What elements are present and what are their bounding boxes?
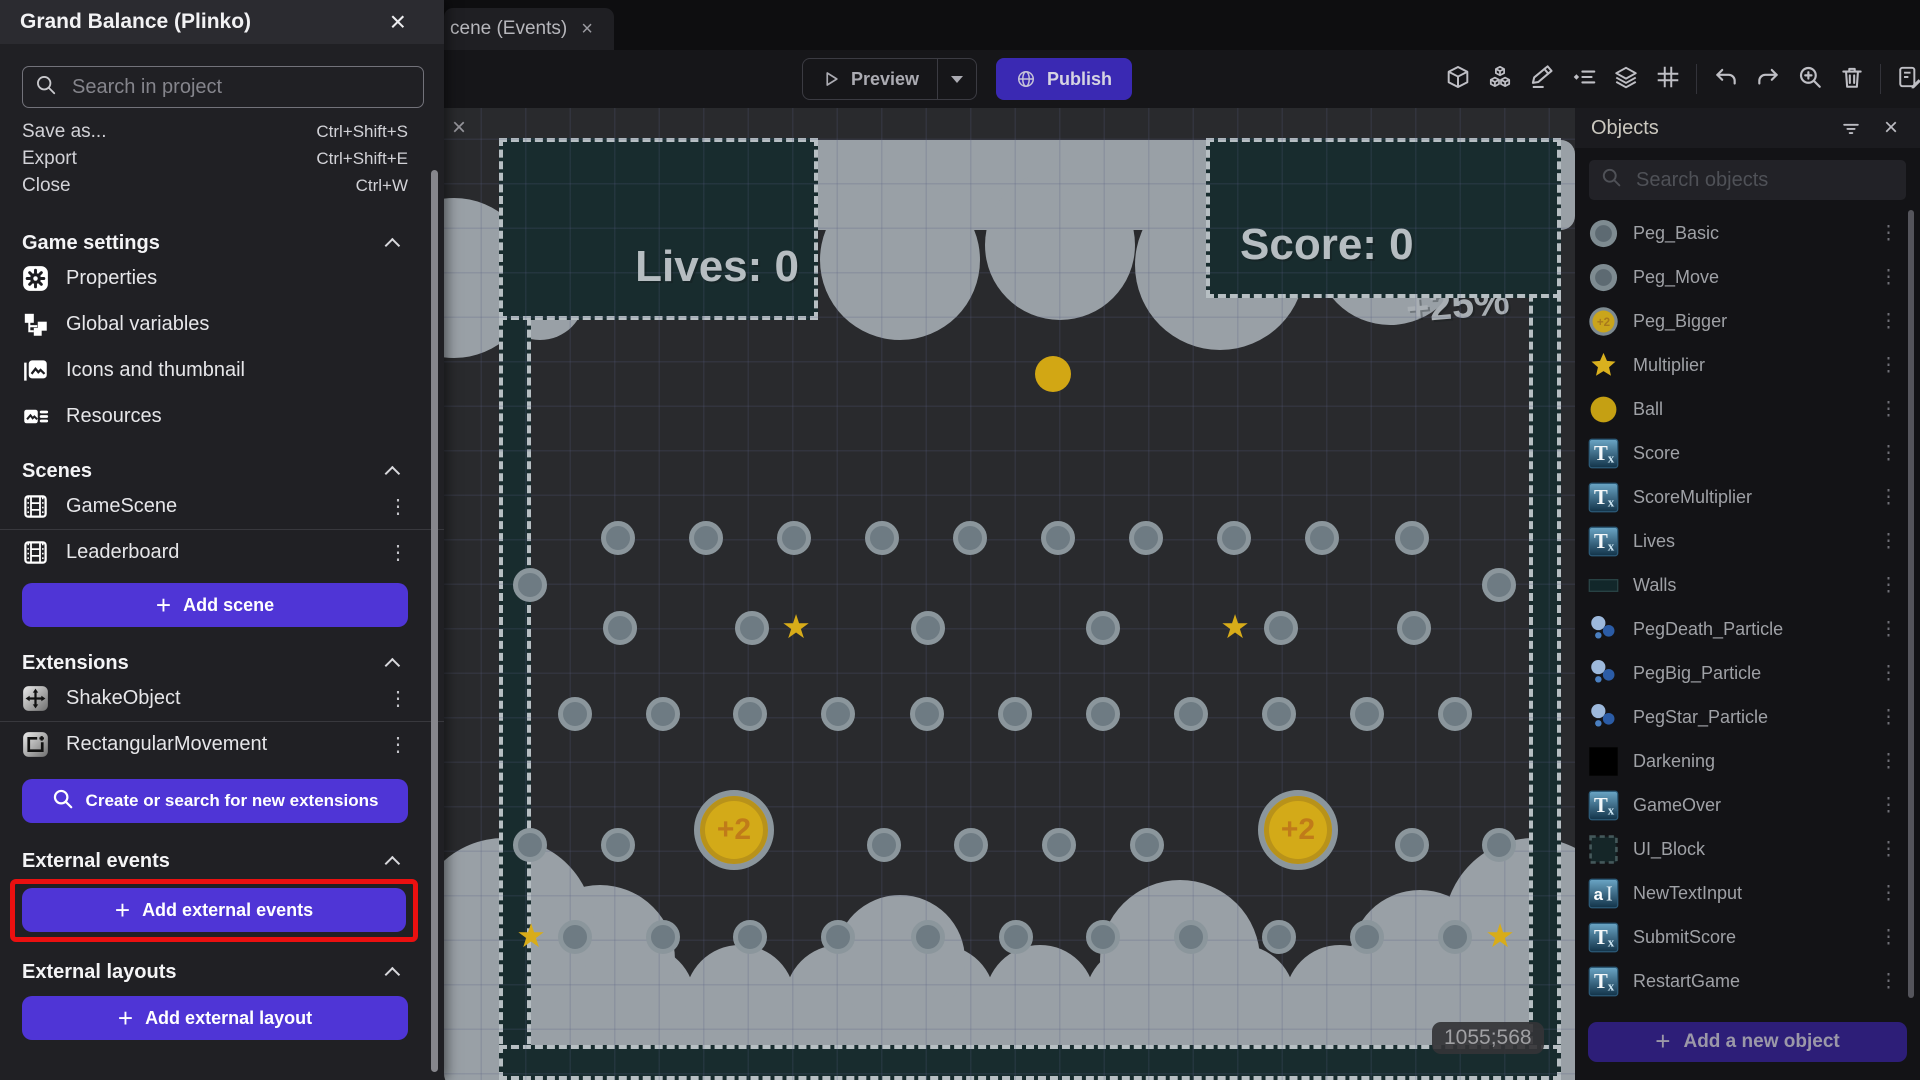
scene-item[interactable]: Leaderboard ⋮: [0, 529, 444, 575]
play-icon: [821, 69, 841, 89]
svg-text:T: T: [1594, 794, 1608, 816]
peg[interactable]: [1174, 920, 1208, 954]
peg[interactable]: [1262, 920, 1296, 954]
preview-dropdown-button[interactable]: [938, 59, 976, 99]
project-search[interactable]: [22, 66, 424, 108]
object-name: RestartGame: [1633, 971, 1865, 992]
wall-score-block[interactable]: [1206, 138, 1561, 298]
plus-icon: [1655, 1028, 1670, 1056]
tx-icon: Tx: [1588, 526, 1619, 557]
chevron-up-icon: [385, 237, 401, 253]
cloud: [985, 945, 1095, 1055]
svg-text:I: I: [1606, 883, 1613, 905]
kebab-menu-icon[interactable]: ⋮: [388, 540, 408, 565]
plus-icon: [156, 592, 171, 619]
peg[interactable]: [1305, 521, 1339, 555]
gridico-icon: [1655, 64, 1681, 95]
object-name: Walls: [1633, 575, 1865, 596]
object-name: PegDeath_Particle: [1633, 619, 1865, 640]
object-name: ScoreMultiplier: [1633, 487, 1865, 508]
peg-icon: [1588, 218, 1619, 249]
menu-item[interactable]: Export Ctrl+Shift+E: [0, 145, 444, 172]
peg[interactable]: [1397, 611, 1431, 645]
object-name: GameOver: [1633, 795, 1865, 816]
cloud: [820, 180, 980, 340]
film-icon: [22, 493, 49, 520]
object-row[interactable]: PegBig_Particle ⋮: [1575, 651, 1920, 695]
wallico-icon: [1588, 570, 1619, 601]
uiblock-icon: [1588, 834, 1619, 865]
peg[interactable]: [1129, 521, 1163, 555]
peg[interactable]: [1041, 521, 1075, 555]
blackico-icon: [1588, 746, 1619, 777]
peg[interactable]: [1217, 521, 1251, 555]
peg[interactable]: [911, 920, 945, 954]
kebab-menu-icon[interactable]: ⋮: [1879, 530, 1898, 553]
peg[interactable]: [867, 828, 901, 862]
svg-text:T: T: [1594, 442, 1608, 464]
game-settings-item[interactable]: Properties: [0, 255, 444, 301]
kebab-menu-icon[interactable]: ⋮: [388, 686, 408, 711]
kebab-menu-icon[interactable]: ⋮: [1879, 398, 1898, 421]
kebab-menu-icon[interactable]: ⋮: [1879, 266, 1898, 289]
game-settings-item[interactable]: Icons and thumbnail: [0, 347, 444, 393]
peg[interactable]: [911, 611, 945, 645]
object-name: Darkening: [1633, 751, 1865, 772]
peg[interactable]: [1395, 521, 1429, 555]
peg[interactable]: [1086, 611, 1120, 645]
game-settings-item[interactable]: Resources: [0, 393, 444, 439]
svg-text:T: T: [1594, 926, 1608, 948]
svg-text:T: T: [1594, 486, 1608, 508]
objects-panel: Objects × Peg_Basic ⋮: [1575, 108, 1920, 1080]
peg[interactable]: [910, 697, 944, 731]
game-settings-item[interactable]: Global variables: [0, 301, 444, 347]
scene-item[interactable]: GameScene ⋮: [0, 483, 444, 529]
kebab-menu-icon[interactable]: ⋮: [1879, 222, 1898, 245]
peg[interactable]: [603, 611, 637, 645]
chevron-down-icon: [951, 76, 963, 83]
object-row[interactable]: Tx SubmitScore ⋮: [1575, 915, 1920, 959]
svg-text:+2: +2: [1597, 316, 1610, 329]
project-search-input[interactable]: [70, 75, 411, 100]
svg-text:x: x: [1608, 494, 1615, 509]
objects-search[interactable]: [1589, 160, 1906, 200]
resources-icon: [22, 403, 49, 430]
object-name: Peg_Basic: [1633, 223, 1865, 244]
object-name: PegStar_Particle: [1633, 707, 1865, 728]
peg[interactable]: [646, 920, 680, 954]
kebab-menu-icon[interactable]: ⋮: [1879, 794, 1898, 817]
zoomin-icon: [1797, 64, 1823, 95]
close-icon[interactable]: ×: [390, 8, 406, 36]
close-icon[interactable]: ×: [1878, 115, 1904, 141]
object-name: Peg_Move: [1633, 267, 1865, 288]
kebab-menu-icon[interactable]: ⋮: [1879, 662, 1898, 685]
section-header-scenes[interactable]: Scenes: [0, 459, 444, 483]
peg[interactable]: [1350, 697, 1384, 731]
object-row[interactable]: UI_Block ⋮: [1575, 827, 1920, 871]
object-row[interactable]: Multiplier ⋮: [1575, 343, 1920, 387]
ilist-icon: [1571, 64, 1597, 95]
object-row[interactable]: Ball ⋮: [1575, 387, 1920, 431]
peg[interactable]: [1086, 920, 1120, 954]
particle-icon: [1588, 702, 1619, 733]
section-header-external-events[interactable]: External events: [0, 849, 444, 873]
svg-text:a: a: [1594, 884, 1604, 903]
peg[interactable]: [999, 920, 1033, 954]
sheet-icon: [1897, 64, 1920, 95]
peg[interactable]: [735, 611, 769, 645]
peg[interactable]: [1482, 568, 1516, 602]
plus-icon: [115, 897, 130, 924]
star-multiplier[interactable]: [514, 919, 548, 953]
object-row[interactable]: aI NewTextInput ⋮: [1575, 871, 1920, 915]
add-external-layout-button[interactable]: Add external layout: [22, 996, 408, 1040]
cloud: [685, 945, 795, 1055]
rectmove-icon: [22, 731, 49, 758]
search-icon: [1601, 167, 1622, 193]
project-manager-panel: Grand Balance (Plinko) × Save as... Ctrl…: [0, 0, 444, 1080]
close-icon[interactable]: ×: [452, 116, 466, 140]
tx-icon: Tx: [1588, 790, 1619, 821]
kebab-menu-icon[interactable]: ⋮: [1879, 354, 1898, 377]
tx-icon: Tx: [1588, 482, 1619, 513]
peg[interactable]: [1086, 697, 1120, 731]
create-extension-button[interactable]: Create or search for new extensions: [22, 779, 408, 823]
kebab-menu-icon[interactable]: ⋮: [1879, 882, 1898, 905]
object-name: SubmitScore: [1633, 927, 1865, 948]
peg[interactable]: [998, 697, 1032, 731]
peg-bigger[interactable]: +2: [694, 790, 774, 870]
particle-icon: [1588, 614, 1619, 645]
svg-text:x: x: [1608, 978, 1615, 993]
peg[interactable]: [1264, 611, 1298, 645]
add-external-events-button[interactable]: Add external events: [22, 888, 406, 932]
svg-text:T: T: [1594, 530, 1608, 552]
objects-search-input[interactable]: [1634, 168, 1903, 193]
object-name: PegBig_Particle: [1633, 663, 1865, 684]
peg[interactable]: [1482, 828, 1516, 862]
kebab-menu-icon[interactable]: ⋮: [1879, 574, 1898, 597]
cloud: [835, 895, 965, 1025]
section-header-external-layouts[interactable]: External layouts: [0, 960, 444, 984]
object-row[interactable]: Tx GameOver ⋮: [1575, 783, 1920, 827]
section-header-extensions[interactable]: Extensions: [0, 651, 444, 675]
object-name: NewTextInput: [1633, 883, 1865, 904]
peg[interactable]: [558, 920, 592, 954]
peg[interactable]: [1350, 920, 1384, 954]
svg-text:x: x: [1608, 934, 1615, 949]
panel-scrollbar[interactable]: [431, 170, 438, 1072]
wall-lives-block[interactable]: [499, 138, 818, 320]
peg[interactable]: [513, 568, 547, 602]
chevron-up-icon: [385, 855, 401, 871]
kebab-menu-icon[interactable]: ⋮: [388, 494, 408, 519]
object-row[interactable]: PegStar_Particle ⋮: [1575, 695, 1920, 739]
image-icon: [22, 357, 49, 384]
lives-text[interactable]: Lives: 0: [594, 242, 799, 292]
object-row[interactable]: Peg_Basic ⋮: [1575, 211, 1920, 255]
svg-text:T: T: [1594, 970, 1608, 992]
extension-item[interactable]: RectangularMovement ⋮: [0, 721, 444, 767]
star-multiplier[interactable]: [1483, 919, 1517, 953]
object-row[interactable]: Tx Lives ⋮: [1575, 519, 1920, 563]
peg[interactable]: [777, 521, 811, 555]
object-name: Peg_Bigger: [1633, 311, 1865, 332]
pegbig-icon: +2: [1588, 306, 1619, 337]
chevron-up-icon: [385, 465, 401, 481]
peg[interactable]: [513, 828, 547, 862]
peg[interactable]: [558, 697, 592, 731]
peg[interactable]: [821, 697, 855, 731]
object-name: UI_Block: [1633, 839, 1865, 860]
object-row[interactable]: Tx ScoreMultiplier ⋮: [1575, 475, 1920, 519]
kebab-menu-icon[interactable]: ⋮: [1879, 970, 1898, 993]
project-title: Grand Balance (Plinko): [20, 10, 251, 34]
shortcut: Ctrl+Shift+S: [316, 122, 408, 142]
kebab-menu-icon[interactable]: ⋮: [1879, 442, 1898, 465]
cloud: [985, 170, 1135, 320]
tab-gamescene-events[interactable]: cene (Events) ×: [444, 8, 614, 50]
peg-bigger[interactable]: +2: [1258, 790, 1338, 870]
peg[interactable]: [601, 521, 635, 555]
cube-icon: [1445, 64, 1471, 95]
search-icon: [35, 74, 57, 101]
search-icon: [52, 788, 74, 815]
plus-icon: [118, 1005, 133, 1032]
filter-icon[interactable]: [1838, 115, 1864, 141]
chevron-up-icon: [385, 657, 401, 673]
peg[interactable]: [1262, 697, 1296, 731]
pencil-icon: [1529, 64, 1555, 95]
kebab-menu-icon[interactable]: ⋮: [1879, 838, 1898, 861]
tx-icon: Tx: [1588, 438, 1619, 469]
kebab-menu-icon[interactable]: ⋮: [1879, 486, 1898, 509]
objects-panel-title: Objects: [1591, 117, 1659, 140]
object-name: Score: [1633, 443, 1865, 464]
peg[interactable]: [646, 697, 680, 731]
peg[interactable]: [1174, 697, 1208, 731]
extension-item[interactable]: ShakeObject ⋮: [0, 675, 444, 721]
layers-icon: [1613, 64, 1639, 95]
kebab-menu-icon[interactable]: ⋮: [1879, 618, 1898, 641]
score-text[interactable]: Score: 0: [1240, 220, 1414, 270]
svg-text:x: x: [1608, 802, 1615, 817]
object-name: Ball: [1633, 399, 1865, 420]
peg[interactable]: [733, 697, 767, 731]
add-scene-button[interactable]: Add scene: [22, 583, 408, 627]
object-name: Multiplier: [1633, 355, 1865, 376]
wall-bottom[interactable]: [499, 1045, 1561, 1080]
objects-scrollbar[interactable]: [1908, 210, 1914, 998]
tx-icon: Tx: [1588, 966, 1619, 997]
scene-editor-canvas[interactable]: +25% Lives: 0 Score: 0 +2+2 1055;568 ×: [444, 108, 1575, 1080]
star-multiplier[interactable]: [779, 610, 813, 644]
object-row[interactable]: Darkening ⋮: [1575, 739, 1920, 783]
cursor-coordinates: 1055;568: [1432, 1022, 1544, 1054]
textinput-icon: aI: [1588, 878, 1619, 909]
globe-icon: [1016, 69, 1036, 89]
trash-icon: [1839, 64, 1865, 95]
object-row[interactable]: +2 Peg_Bigger ⋮: [1575, 299, 1920, 343]
peg[interactable]: [601, 828, 635, 862]
particle-icon: [1588, 658, 1619, 689]
shortcut: Ctrl+Shift+E: [316, 149, 408, 169]
preview-label: Preview: [851, 69, 919, 90]
svg-text:x: x: [1608, 450, 1615, 465]
highlight-red-box: Add external events: [10, 879, 418, 942]
tx-icon: Tx: [1588, 922, 1619, 953]
object-row[interactable]: Tx RestartGame ⋮: [1575, 959, 1920, 1003]
gear-icon: [22, 265, 49, 292]
peg-icon: [1588, 262, 1619, 293]
peg[interactable]: [865, 521, 899, 555]
redo-icon: [1755, 64, 1781, 95]
peg[interactable]: [733, 920, 767, 954]
cubes-icon: [1487, 64, 1513, 95]
peg[interactable]: [689, 521, 723, 555]
objects-panel-header: Objects ×: [1575, 108, 1920, 148]
object-row[interactable]: Tx Score ⋮: [1575, 431, 1920, 475]
section-header-game-settings[interactable]: Game settings: [0, 231, 444, 255]
star-icon: [1588, 350, 1619, 381]
peg[interactable]: [954, 828, 988, 862]
undo-icon: [1713, 64, 1739, 95]
object-row[interactable]: Peg_Move ⋮: [1575, 255, 1920, 299]
ball[interactable]: [1035, 356, 1071, 392]
shake-icon: [22, 685, 49, 712]
project-manager-header: Grand Balance (Plinko) ×: [0, 0, 444, 44]
kebab-menu-icon[interactable]: ⋮: [1879, 926, 1898, 949]
peg[interactable]: [1438, 920, 1472, 954]
menu-item[interactable]: Save as... Ctrl+Shift+S: [0, 118, 444, 145]
svg-text:x: x: [1608, 538, 1615, 553]
peg[interactable]: [1042, 828, 1076, 862]
ballico-icon: [1588, 394, 1619, 425]
peg[interactable]: [1438, 697, 1472, 731]
object-row[interactable]: PegDeath_Particle ⋮: [1575, 607, 1920, 651]
peg[interactable]: [821, 920, 855, 954]
vars-icon: [22, 311, 49, 338]
tab-label: cene (Events): [450, 18, 567, 40]
gdevelop-window: cene (Events) × Preview Publish: [0, 0, 1920, 1080]
peg[interactable]: [1395, 828, 1429, 862]
project-menu: Save as... Ctrl+Shift+S Export Ctrl+Shif…: [0, 118, 444, 199]
publish-label: Publish: [1047, 69, 1112, 90]
object-row[interactable]: Walls ⋮: [1575, 563, 1920, 607]
star-multiplier[interactable]: [1218, 610, 1252, 644]
kebab-menu-icon[interactable]: ⋮: [1879, 310, 1898, 333]
peg[interactable]: [953, 521, 987, 555]
scene-toolbar-icons: [1440, 58, 1920, 100]
menu-item[interactable]: Close Ctrl+W: [0, 172, 444, 199]
peg[interactable]: [1130, 828, 1164, 862]
shortcut: Ctrl+W: [356, 176, 408, 196]
kebab-menu-icon[interactable]: ⋮: [388, 732, 408, 757]
object-name: Lives: [1633, 531, 1865, 552]
objects-list: Peg_Basic ⋮ Peg_Move ⋮ +2 Peg_Bigger ⋮ M…: [1575, 206, 1920, 1022]
add-new-object-button[interactable]: Add a new object: [1588, 1022, 1907, 1062]
tab-close-icon[interactable]: ×: [581, 19, 593, 39]
film-icon: [22, 539, 49, 566]
cloud: [1100, 880, 1260, 1040]
publish-button[interactable]: Publish: [996, 58, 1132, 100]
chevron-up-icon: [385, 966, 401, 982]
preview-button[interactable]: Preview: [802, 58, 977, 100]
kebab-menu-icon[interactable]: ⋮: [1879, 706, 1898, 729]
kebab-menu-icon[interactable]: ⋮: [1879, 750, 1898, 773]
